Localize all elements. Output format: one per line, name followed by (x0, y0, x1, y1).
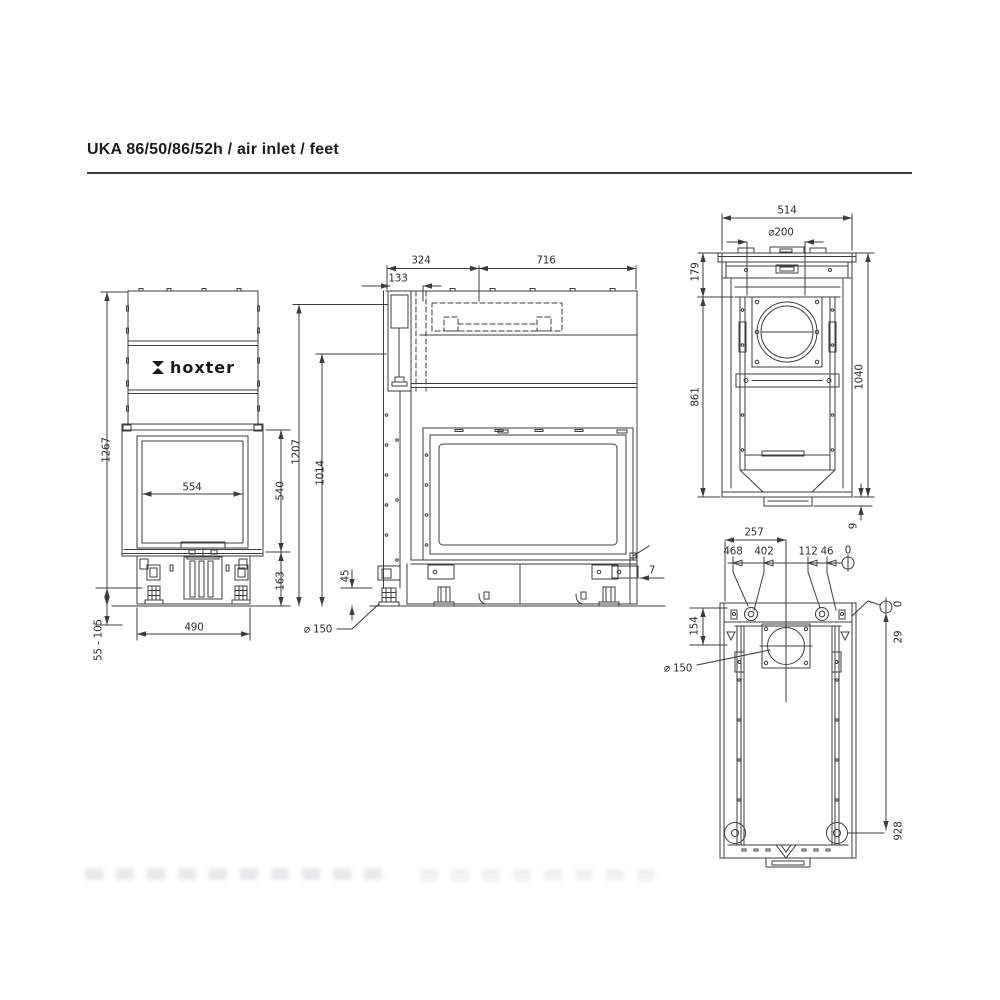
dim-plan-hole-46: 46 (821, 545, 834, 558)
hoxter-logo-text: hoxter (170, 358, 235, 377)
dim-front-foot-range: 55 - 105 (92, 619, 105, 661)
dim-rear-base-plate-height: 9 (847, 523, 860, 529)
dim-side-pipe-offset: 133 (388, 272, 407, 285)
faded-footer-text-remnant (420, 869, 665, 881)
dim-plan-hole-112: 112 (798, 545, 817, 558)
dim-side-depth-front: 716 (536, 254, 555, 267)
hoxter-logo: hoxter (136, 354, 251, 380)
dim-rear-body-height: 861 (689, 387, 702, 406)
faded-footer-text-remnant (85, 868, 385, 880)
dim-plan-feet-distance: 928 (892, 821, 905, 840)
dim-plan-hole-402: 402 (754, 545, 773, 558)
technical-drawing-canvas (0, 0, 1000, 1000)
front-view-drawing (96, 289, 290, 641)
rear-view-drawing (698, 214, 874, 520)
dim-rear-flue-diameter: ⌀200 (768, 226, 793, 239)
dim-side-height-body: 1014 (314, 460, 327, 486)
dim-side-depth-rear: 324 (411, 254, 430, 267)
dim-front-base-height: 163 (274, 571, 287, 590)
dim-side-height-connector: 1207 (290, 439, 303, 465)
dim-rear-width: 514 (777, 204, 796, 217)
technical-drawing-page: UKA 86/50/86/52h / air inlet / feet (0, 0, 1000, 1000)
dim-rear-collar-height: 179 (689, 262, 702, 281)
dim-side-foot-height: 45 (339, 570, 352, 583)
hoxter-logo-icon (152, 361, 164, 374)
dim-plan-flue-center-offset: 257 (744, 526, 763, 539)
dim-front-glass-width: 554 (182, 481, 201, 494)
dim-front-glass-height: 540 (274, 481, 287, 500)
dim-plan-datum-zero: 0 (892, 601, 905, 607)
dim-front-overall-height: 1267 (100, 437, 113, 463)
dim-plan-air-inlet-diameter: ⌀ 150 (664, 662, 692, 675)
dim-plan-hole-row-offset: 29 (892, 631, 905, 644)
dim-plan-hole-468: 468 (723, 545, 742, 558)
dim-side-rear-gap: 7 (649, 564, 655, 577)
dim-plan-flue-axis-offset: 154 (688, 616, 701, 635)
plan-view-drawing (690, 540, 892, 867)
dim-plan-hole-0: 0 (845, 544, 851, 557)
dim-front-base-width: 490 (184, 621, 203, 634)
dim-rear-overall-height: 1040 (853, 364, 866, 390)
dim-side-air-inlet-diameter: ⌀ 150 (304, 623, 332, 636)
